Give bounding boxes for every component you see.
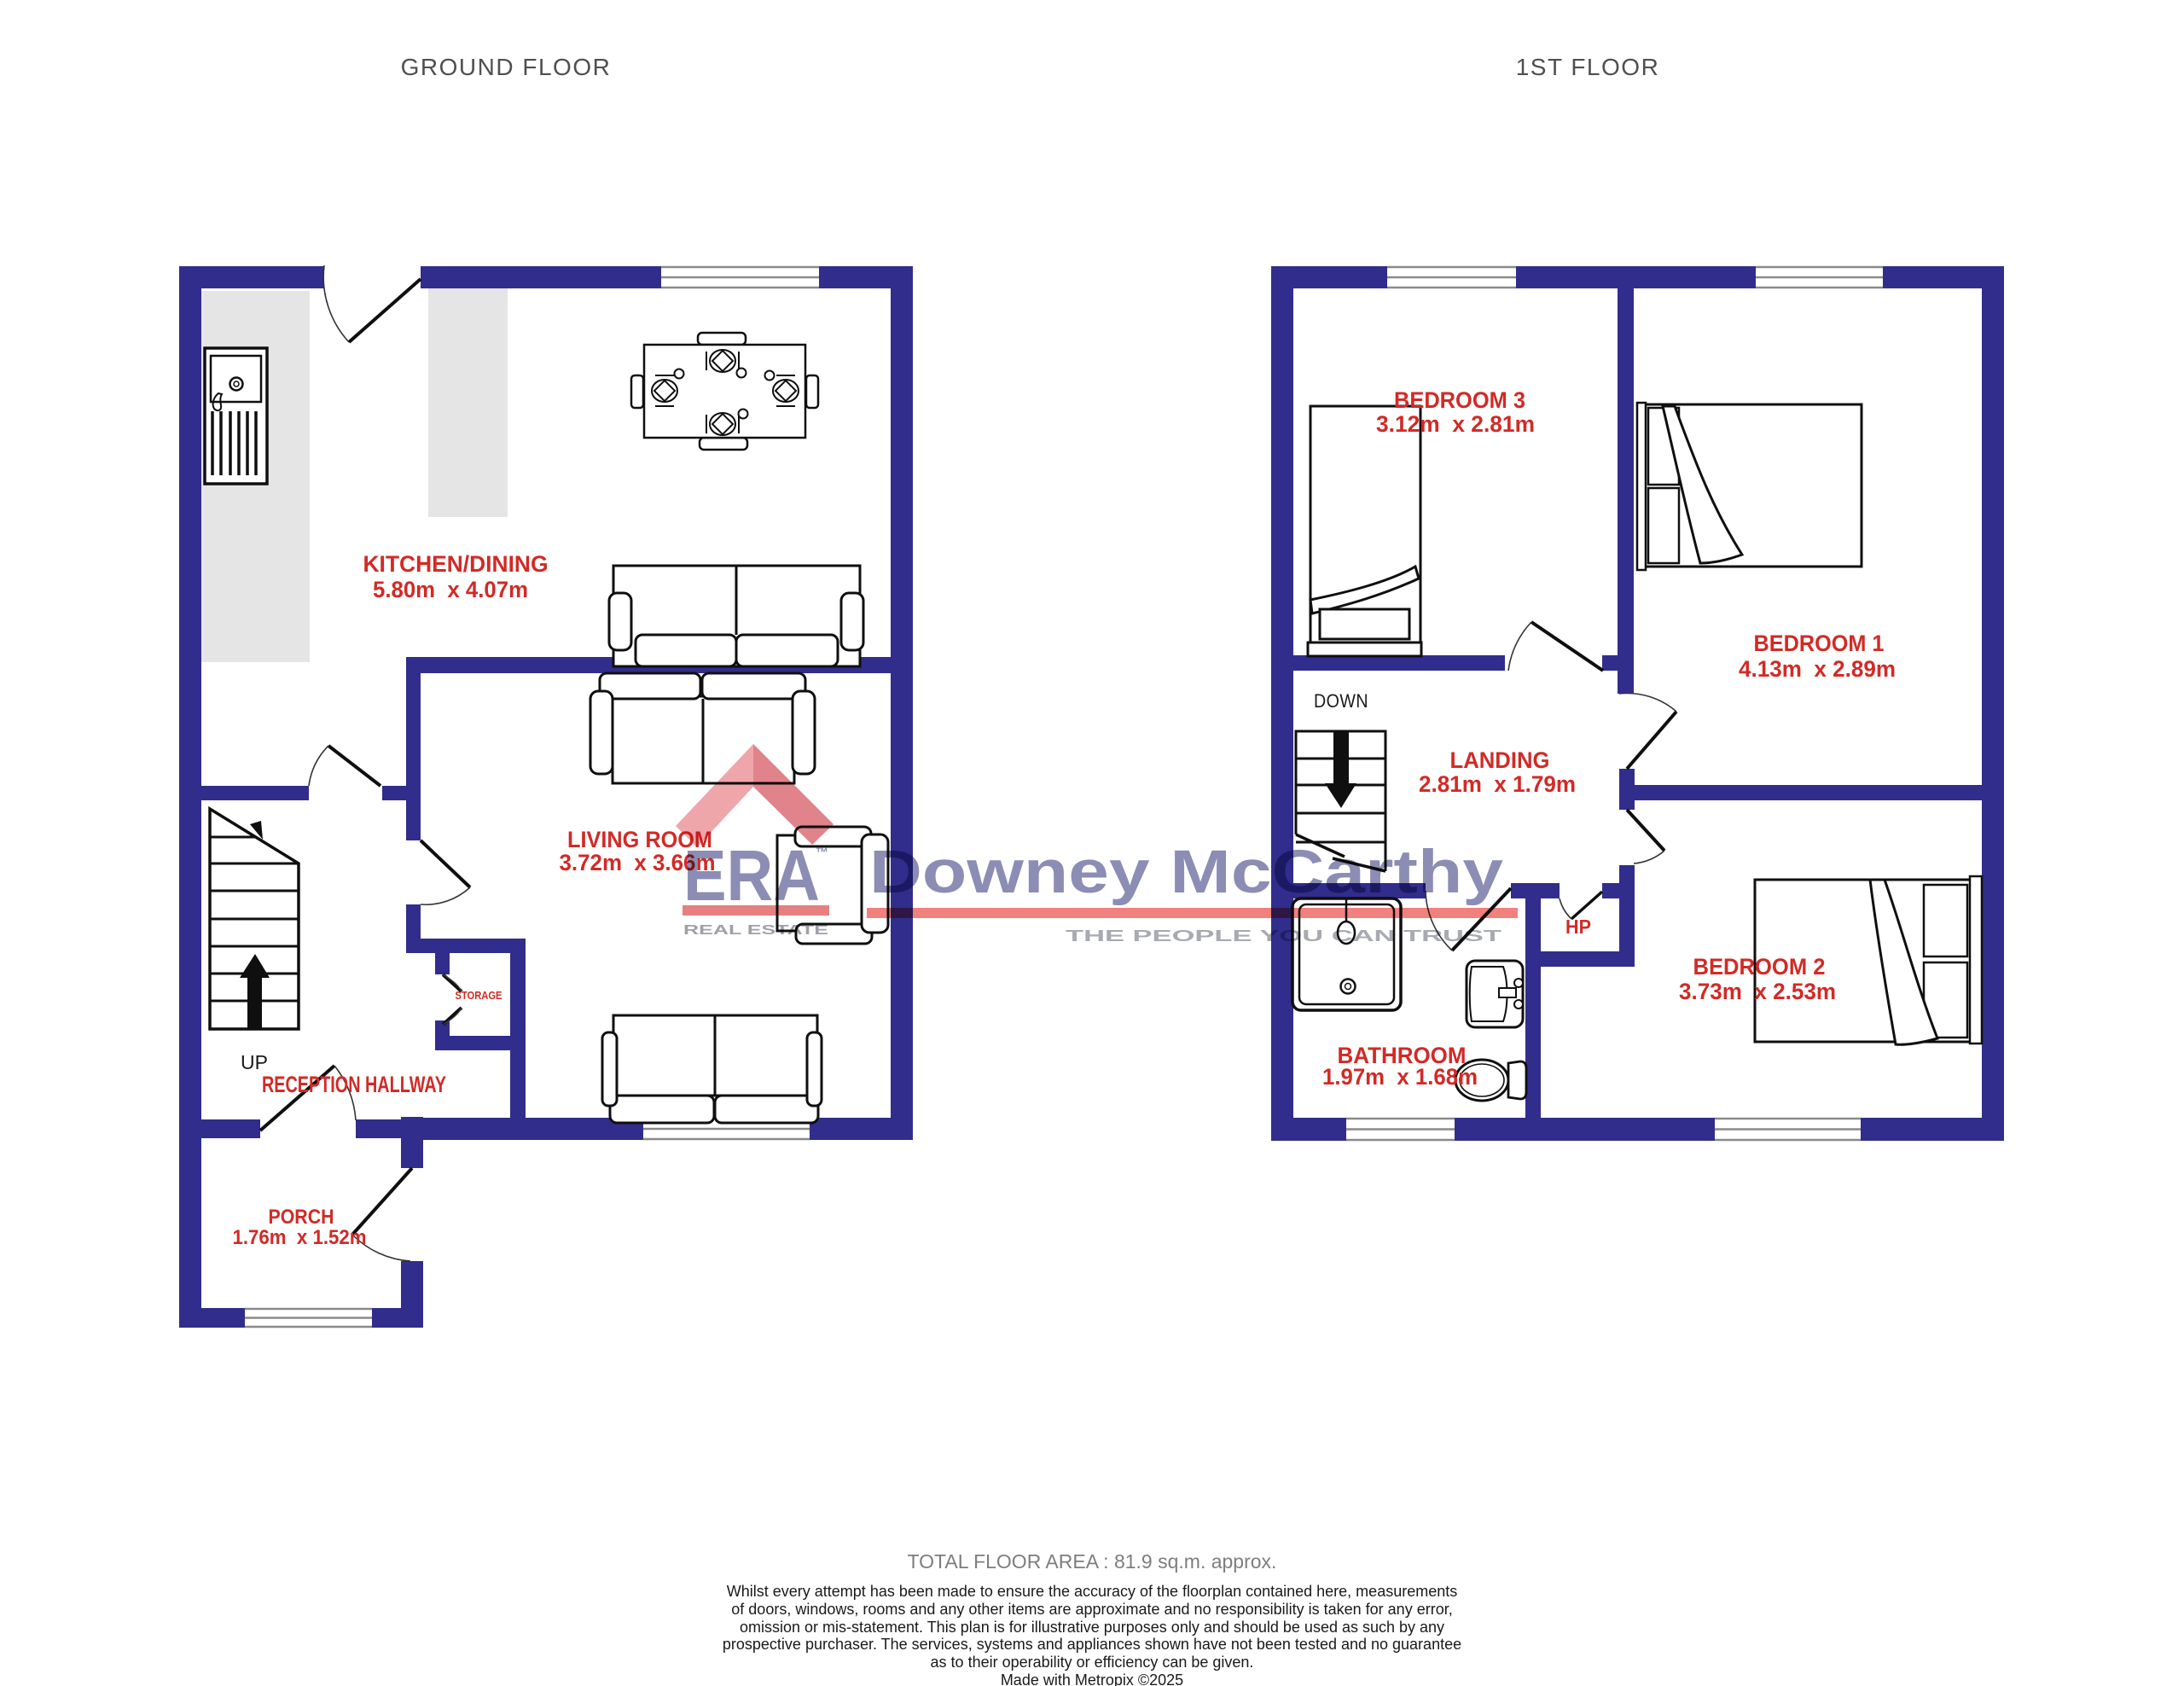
svg-text:1.97m x 1.68m: 1.97m x 1.68m — [1322, 1064, 1478, 1090]
svg-text:5.80m x 4.07m: 5.80m x 4.07m — [373, 577, 528, 602]
svg-text:prospective purchaser. The ser: prospective purchaser. The services, sys… — [723, 1636, 1461, 1653]
svg-text:BEDROOM 3: BEDROOM 3 — [1394, 387, 1525, 413]
svg-text:HP: HP — [1565, 916, 1591, 938]
svg-text:GROUND FLOOR: GROUND FLOOR — [401, 54, 612, 80]
svg-text:4.13m x 2.89m: 4.13m x 2.89m — [1739, 656, 1896, 682]
svg-text:Made with Metropix ©2025: Made with Metropix ©2025 — [1001, 1671, 1183, 1686]
svg-text:as to their operability or eff: as to their operability or efficiency ca… — [931, 1654, 1254, 1671]
svg-text:PORCH: PORCH — [269, 1206, 334, 1229]
svg-text:TOTAL FLOOR AREA : 81.9 sq.m.: TOTAL FLOOR AREA : 81.9 sq.m. approx. — [908, 1550, 1277, 1573]
svg-text:KITCHEN/DINING: KITCHEN/DINING — [363, 551, 549, 577]
svg-text:THE PEOPLE YOU CAN TRUST: THE PEOPLE YOU CAN TRUST — [1066, 927, 1502, 945]
svg-text:™: ™ — [816, 846, 828, 860]
svg-text:STORAGE: STORAGE — [456, 989, 502, 1002]
svg-text:BEDROOM 2: BEDROOM 2 — [1693, 954, 1826, 980]
svg-text:REAL ESTATE: REAL ESTATE — [683, 923, 828, 938]
svg-text:omission or mis-statement. Thi: omission or mis-statement. This plan is … — [740, 1619, 1444, 1636]
svg-text:1.76m x 1.52m: 1.76m x 1.52m — [233, 1226, 367, 1249]
svg-text:DOWN: DOWN — [1314, 690, 1368, 712]
svg-text:3.12m x 2.81m: 3.12m x 2.81m — [1376, 411, 1535, 437]
svg-text:3.73m x 2.53m: 3.73m x 2.53m — [1679, 979, 1836, 1004]
svg-text:ERA: ERA — [683, 835, 820, 916]
svg-text:of doors, windows, rooms and a: of doors, windows, rooms and any other i… — [731, 1601, 1452, 1618]
svg-text:Downey McCarthy: Downey McCarthy — [869, 839, 1504, 906]
svg-text:Whilst every attempt has been: Whilst every attempt has been made to en… — [727, 1583, 1457, 1600]
svg-text:UP: UP — [241, 1051, 268, 1073]
svg-text:1ST FLOOR: 1ST FLOOR — [1516, 54, 1660, 80]
svg-text:2.81m x 1.79m: 2.81m x 1.79m — [1419, 771, 1576, 797]
svg-text:RECEPTION HALLWAY: RECEPTION HALLWAY — [262, 1072, 446, 1097]
svg-text:BEDROOM 1: BEDROOM 1 — [1754, 631, 1885, 656]
svg-text:LANDING: LANDING — [1450, 747, 1550, 773]
